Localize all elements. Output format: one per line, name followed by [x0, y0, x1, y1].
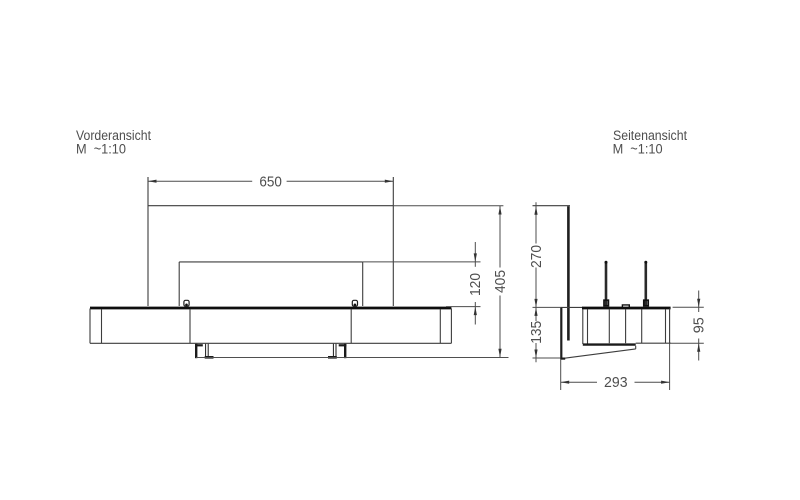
- svg-text:M ~1:10: M ~1:10: [613, 142, 663, 157]
- svg-text:135: 135: [528, 321, 545, 344]
- svg-text:650: 650: [259, 173, 282, 190]
- svg-text:M ~1:10: M ~1:10: [76, 142, 126, 157]
- svg-text:270: 270: [528, 245, 545, 268]
- svg-text:293: 293: [604, 374, 628, 391]
- svg-text:120: 120: [467, 273, 484, 296]
- svg-text:405: 405: [492, 270, 509, 293]
- svg-text:95: 95: [691, 317, 708, 333]
